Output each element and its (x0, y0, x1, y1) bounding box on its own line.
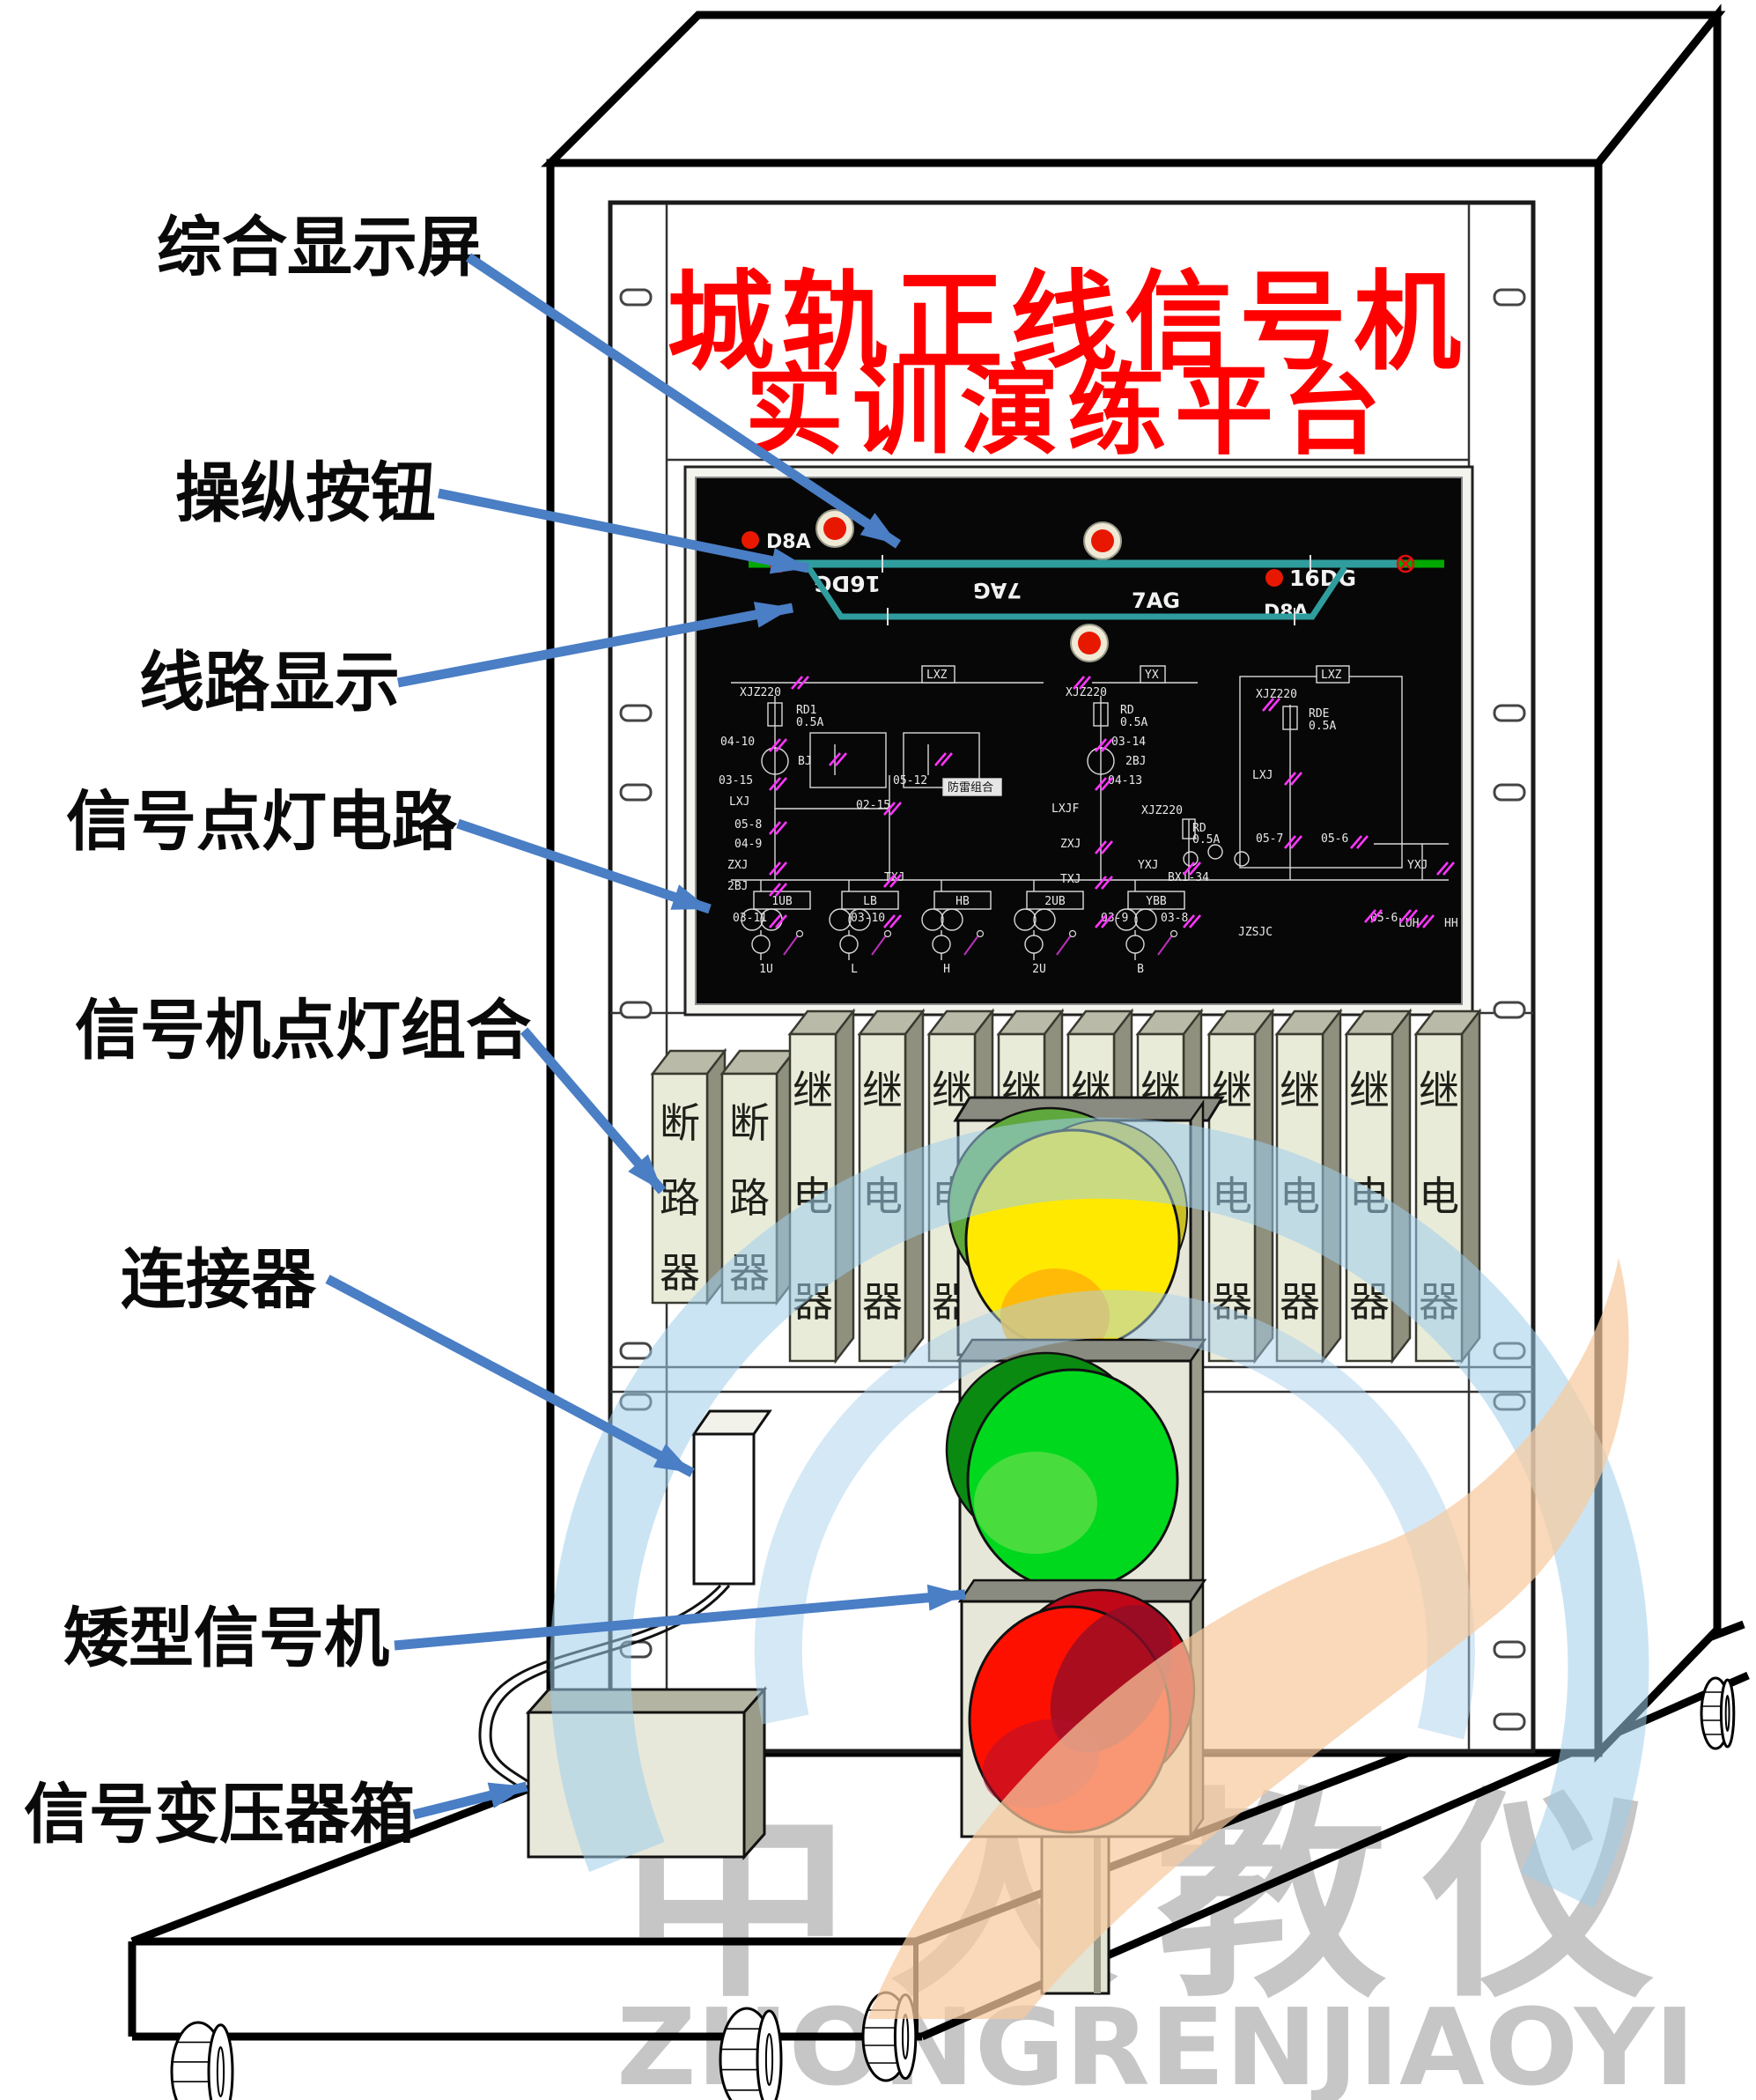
svg-text:1UB: 1UB (771, 895, 793, 908)
schematic-label: 防雷组合 (948, 780, 993, 794)
rail-screw-hole (621, 1343, 651, 1358)
schematic-label: 03-14 (1111, 736, 1146, 749)
schematic-label: XJZ220 (1066, 686, 1107, 699)
schematic-label: LXZ (1321, 669, 1342, 682)
schematic-label: 0.5A (1120, 716, 1147, 729)
svg-text:2UB: 2UB (1044, 895, 1066, 908)
rail-screw-hole (1494, 785, 1524, 800)
svg-text:B: B (1137, 963, 1144, 976)
module-label-char: 继 (1419, 1068, 1459, 1113)
schematic-label: 04-13 (1108, 774, 1142, 787)
rail-screw-hole (621, 785, 651, 800)
schematic-label: YXJ (1407, 859, 1428, 872)
rail-screw-hole (621, 706, 651, 721)
schematic-label: ZXJ (1060, 838, 1081, 851)
module-label-char: 断 (729, 1101, 770, 1146)
callout-label-signal-transformer-box: 信号变压器箱 (24, 1779, 415, 1852)
schematic-label: JZSJC (1238, 926, 1273, 939)
control-button-3[interactable] (1071, 625, 1108, 662)
schematic-label: 05-8 (734, 818, 762, 832)
module-label-char: 器 (1280, 1280, 1320, 1325)
schematic-label: 05-12 (893, 774, 927, 787)
schematic-label: 04-9 (734, 838, 762, 851)
rail-screw-hole (1494, 706, 1524, 721)
schematic-label: 2BJ (1125, 755, 1146, 768)
svg-text:1U: 1U (759, 963, 773, 976)
track-label-7ag-left: 7AG (973, 578, 1022, 603)
callout-label-signal-lighting-circuit: 信号点灯电路 (66, 787, 458, 859)
display-screen: D8A 16DG 16DG D8A (685, 467, 1472, 1015)
schematic-label: 0.5A (1192, 833, 1220, 847)
schematic-label: 0.5A (1309, 720, 1336, 733)
schematic-label: ZXJ (727, 859, 748, 872)
module-label-char: 继 (862, 1068, 903, 1113)
schematic-label: 05-6 (1321, 832, 1348, 846)
svg-text:HB: HB (955, 895, 970, 908)
module-label-char: 继 (793, 1068, 833, 1113)
svg-text:LB: LB (863, 895, 877, 908)
callout-label-connector: 连接器 (121, 1245, 317, 1317)
track-label-7ag-right: 7AG (1132, 588, 1180, 613)
schematic-label: 03-8 (1161, 912, 1188, 925)
schematic-label: 03-15 (719, 774, 753, 787)
svg-text:2U: 2U (1032, 963, 1046, 976)
module-label-char: 电 (1419, 1174, 1459, 1219)
rail-screw-hole (621, 1002, 651, 1017)
caster-wheel (172, 2022, 232, 2100)
schematic-label: XJZ220 (1256, 688, 1297, 701)
schematic-label: XJZ220 (740, 686, 781, 699)
rail-screw-hole (1494, 1642, 1524, 1657)
schematic-label: TXJ (1060, 873, 1081, 886)
rail-screw-hole (1494, 1714, 1524, 1729)
schematic-label: LXJ (729, 795, 749, 809)
module-label-char: 继 (1280, 1068, 1320, 1113)
callout-label-dwarf-signal: 矮型信号机 (63, 1603, 389, 1675)
rail-screw-hole (1494, 1002, 1524, 1017)
schematic-label: RDE (1309, 707, 1329, 721)
schematic-label: 0.5A (796, 716, 823, 729)
module-label-char: 继 (1349, 1068, 1390, 1113)
schematic-label: XJZ220 (1141, 804, 1183, 817)
schematic-label: 04-10 (720, 736, 755, 749)
callout-label-line-display: 线路显示 (139, 647, 400, 720)
control-button-2[interactable] (1084, 522, 1121, 559)
module-label-char: 器 (660, 1251, 700, 1296)
schematic-label: 02-15 (856, 799, 890, 812)
schematic-label: LXJ (1252, 769, 1273, 782)
schematic-label: LXJF (1051, 802, 1079, 816)
svg-text:L: L (851, 963, 858, 976)
track-label-d8a-left: D8A (766, 531, 811, 553)
module-breaker-1: 断路器 (653, 1051, 725, 1303)
track-indicator-lamp-left (742, 531, 759, 549)
callout-label-display-screen: 综合显示屏 (157, 212, 483, 285)
diagram-stage: 中人教仪 ZHONGRENJIAOYI 城轨正线信号机 实训演练平台 (0, 0, 1756, 2100)
svg-text:H: H (943, 963, 950, 976)
schematic-label: HH (1444, 917, 1458, 930)
callout-label-signal-lamp-combo: 信号机点灯组合 (75, 995, 531, 1068)
schematic-label: RD1 (796, 704, 816, 717)
schematic-label: RD (1120, 704, 1134, 717)
cabinet-top-face (550, 15, 1717, 163)
module-label-char: 器 (862, 1280, 903, 1325)
title-panel: 城轨正线信号机 实训演练平台 (667, 264, 1468, 467)
schematic-label: LXZ (926, 669, 948, 682)
track-label-d8a-right: D8A (1264, 602, 1309, 624)
caster-wheel (1701, 1678, 1734, 1749)
schematic-label: YX (1145, 669, 1159, 682)
track-indicator-lamp-right (1265, 569, 1283, 587)
schematic-label: BX1-34 (1168, 871, 1209, 884)
module-label-char: 断 (660, 1101, 700, 1146)
title-line2: 实训演练平台 (745, 358, 1390, 467)
rail-screw-hole (1494, 290, 1524, 305)
schematic-label: BJ (798, 755, 812, 768)
caster-wheel (720, 2008, 781, 2100)
schematic-label: 2BJ (727, 880, 748, 893)
module-label-char: 路 (660, 1176, 700, 1221)
rail-screw-hole (621, 290, 651, 305)
callout-label-control-buttons: 操纵按钮 (175, 458, 436, 530)
svg-text:YBB: YBB (1146, 895, 1167, 908)
module-label-char: 路 (729, 1176, 770, 1221)
training-cabinet-diagram: 中人教仪 ZHONGRENJIAOYI 城轨正线信号机 实训演练平台 (0, 0, 1756, 2100)
schematic-label: 05-7 (1256, 832, 1283, 846)
signal-green-unit (947, 1340, 1205, 1596)
schematic-label: YXJ (1138, 859, 1158, 872)
